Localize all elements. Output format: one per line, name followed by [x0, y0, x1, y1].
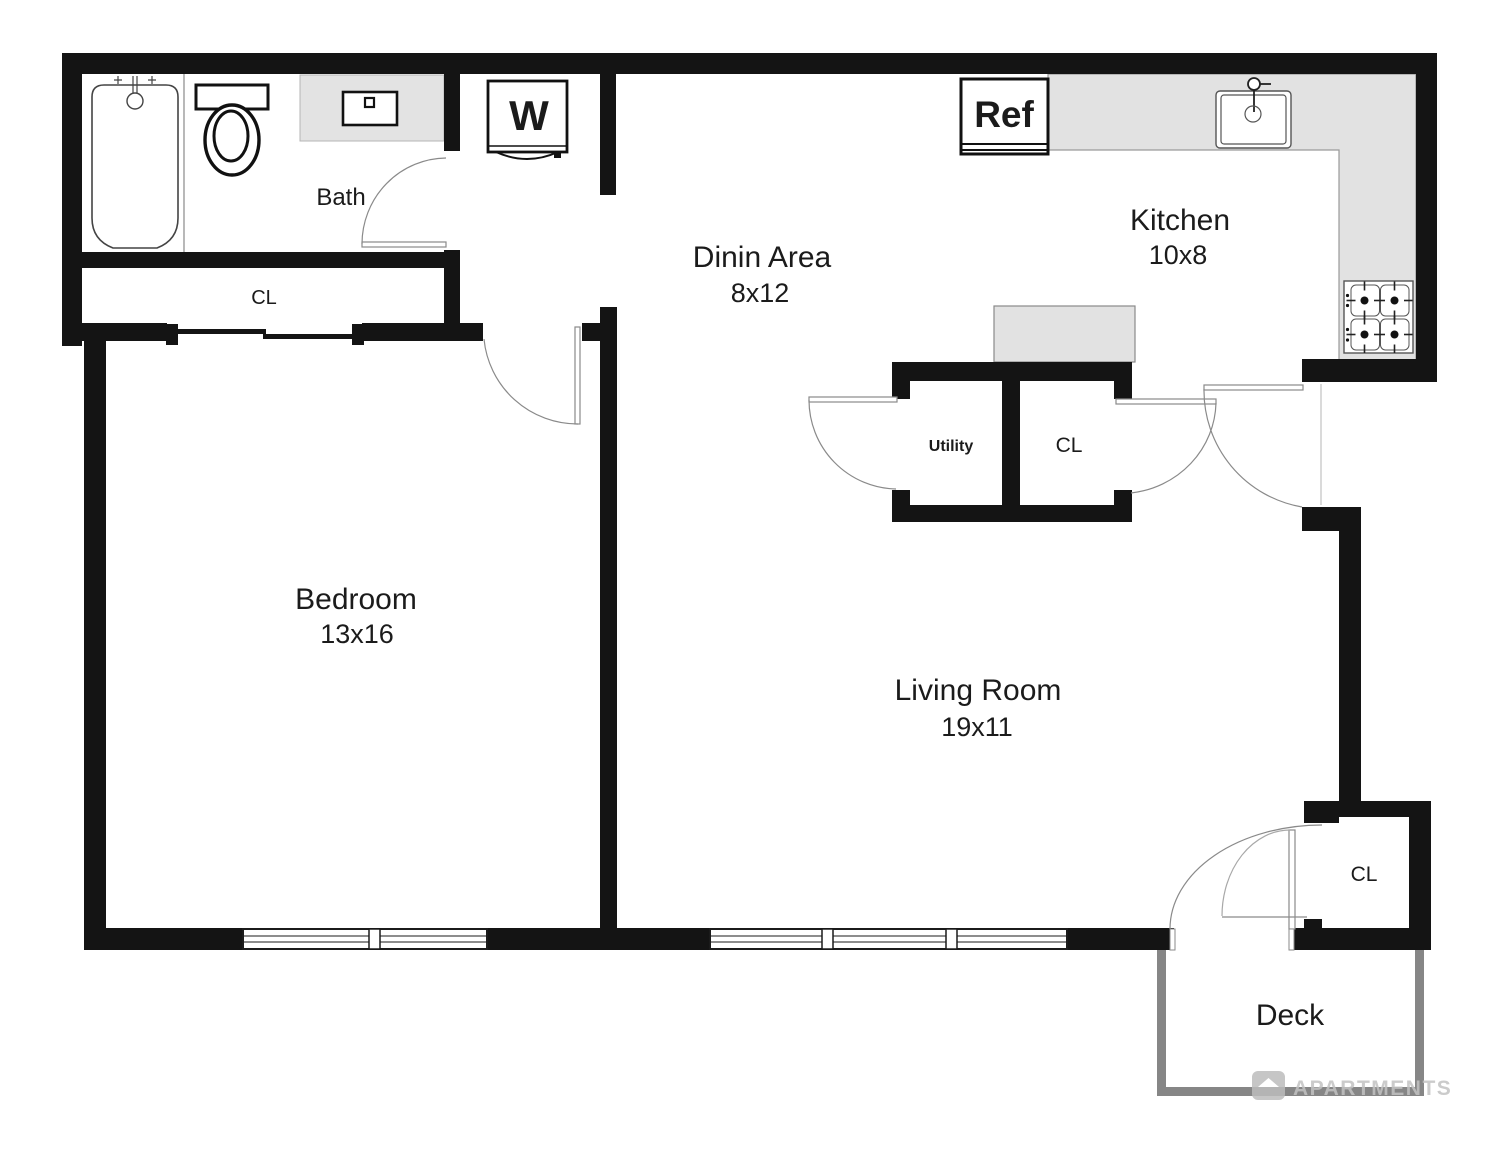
svg-text:13x16: 13x16	[320, 619, 394, 649]
svg-text:CL: CL	[1056, 434, 1083, 457]
svg-text:Ref: Ref	[974, 94, 1034, 135]
svg-text:Utility: Utility	[929, 438, 974, 455]
svg-text:CL: CL	[1351, 863, 1378, 886]
svg-text:APARTMENTS: APARTMENTS	[1293, 1077, 1452, 1100]
svg-text:Living Room: Living Room	[895, 674, 1062, 707]
svg-text:Bedroom: Bedroom	[295, 583, 417, 616]
svg-text:CL: CL	[251, 287, 277, 309]
svg-text:10x8: 10x8	[1149, 240, 1208, 270]
svg-text:19x11: 19x11	[941, 712, 1013, 742]
svg-text:W: W	[509, 92, 549, 139]
svg-text:Dinin Area: Dinin Area	[693, 241, 832, 274]
svg-text:Kitchen: Kitchen	[1130, 204, 1230, 237]
svg-text:Bath: Bath	[316, 184, 365, 211]
svg-text:Deck: Deck	[1256, 999, 1325, 1032]
svg-text:8x12: 8x12	[731, 278, 790, 308]
